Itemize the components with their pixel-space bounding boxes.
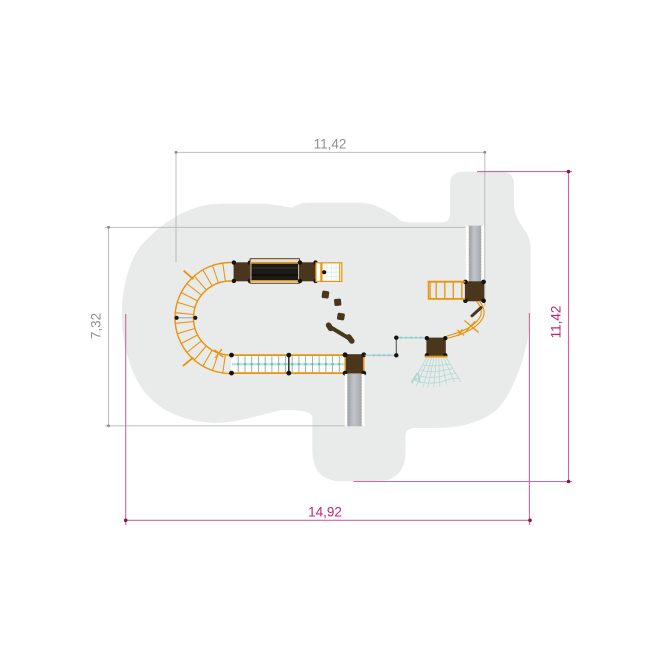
svg-text:7,32: 7,32 xyxy=(89,313,104,339)
svg-text:11,42: 11,42 xyxy=(549,306,564,339)
svg-text:11,42: 11,42 xyxy=(314,137,347,152)
svg-text:14,92: 14,92 xyxy=(308,504,342,519)
svg-text:A: A xyxy=(411,370,422,387)
